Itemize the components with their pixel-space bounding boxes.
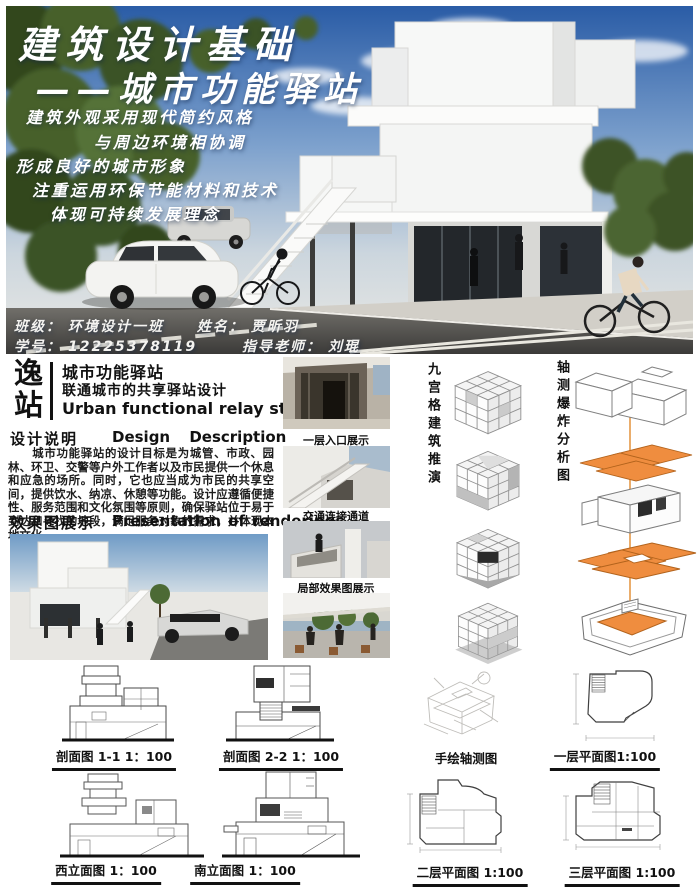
- elevation-west-drawing: [58, 770, 206, 862]
- project-logo-char1: 逸: [14, 358, 43, 389]
- project-subtitle-cn: 联通城市的共享驿站设计: [62, 380, 227, 400]
- slogan-2: 与周边环境相协调: [94, 129, 246, 153]
- hand-axon-sketch: [414, 664, 506, 744]
- nine-grid-step3: [450, 526, 526, 593]
- slogan-3: 形成良好的城市形象: [16, 153, 187, 177]
- id-value: 12225378119: [68, 339, 197, 354]
- poster-title-line1: 建筑设计基础: [18, 14, 300, 69]
- student-info-line2: 学号：12225378119 指导老师：刘琨: [14, 336, 360, 354]
- hand-axon-label: 手绘轴测图: [435, 748, 498, 767]
- header-divider: [50, 362, 53, 420]
- plan-3-drawing: [556, 768, 674, 852]
- class-value: 环境设计一班: [68, 319, 164, 335]
- elevation-west-label: 西立面图 1：100: [51, 860, 161, 885]
- plan-2-label: 二层平面图 1:100: [413, 862, 528, 887]
- description-heading-en: Design Description: [112, 428, 286, 446]
- thumb-entrance-image: [283, 357, 390, 429]
- slogan-1: 建筑外观采用现代简约风格: [26, 104, 254, 128]
- name-label: 姓名：: [197, 319, 245, 335]
- exploded-axon-diagram: [568, 365, 699, 657]
- design-poster: 建筑设计基础 ——城市功能驿站 建筑外观采用现代简约风格 与周边环境相协调 形成…: [0, 0, 699, 892]
- teacher-label: 指导老师：: [242, 339, 322, 354]
- id-label: 学号：: [14, 339, 62, 354]
- plan-1-drawing: [566, 666, 661, 744]
- section-1-1-label: 剖面图 1-1 1：100: [52, 746, 176, 771]
- nine-grid-step1: [448, 368, 528, 439]
- nine-grid-step4: [452, 600, 524, 664]
- main-rendering-image: [10, 534, 268, 660]
- elevation-south-label: 南立面图 1：100: [190, 860, 300, 885]
- nine-grid-label: 九宫格建筑推演: [425, 362, 440, 488]
- thumb-stairs-image: [283, 446, 390, 508]
- project-logo-char2: 站: [14, 390, 43, 421]
- exploded-axon-label: 轴测爆炸分析图: [554, 360, 569, 486]
- hero-rendering: 建筑设计基础 ——城市功能驿站 建筑外观采用现代简约风格 与周边环境相协调 形成…: [6, 6, 693, 354]
- slogan-4: 注重运用环保节能材料和技术: [32, 177, 279, 201]
- slogan-5: 体现可持续发展理念: [50, 201, 221, 225]
- teacher-value: 刘琨: [328, 339, 360, 354]
- thumb-interior-image: [283, 593, 390, 658]
- thumb-balcony-image: [283, 521, 390, 578]
- student-info-line1: 班级：环境设计一班 姓名：贾昕羽: [14, 316, 299, 336]
- plan-3-label: 三层平面图 1:100: [565, 862, 680, 887]
- section-2-2-drawing: [226, 662, 334, 748]
- name-value: 贾昕羽: [251, 319, 299, 335]
- section-1-1-drawing: [62, 662, 174, 748]
- renderings-heading-cn: 效果图展示: [10, 512, 95, 533]
- elevation-south-drawing: [220, 770, 362, 862]
- nine-grid-step2: [450, 448, 526, 515]
- plan-2-drawing: [402, 770, 514, 854]
- section-2-2-label: 剖面图 2-2 1：100: [219, 746, 343, 771]
- class-label: 班级：: [14, 319, 62, 335]
